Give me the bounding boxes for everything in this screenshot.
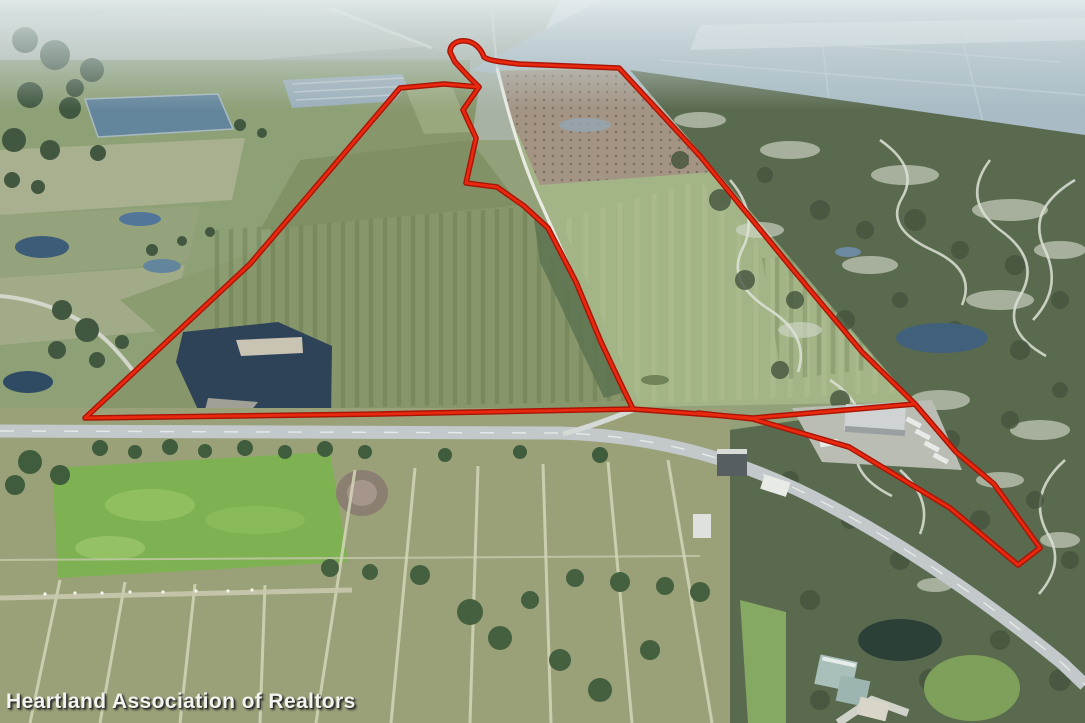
aerial-photo: Heartland Association of Realtors — [0, 0, 1085, 723]
watermark-text: Heartland Association of Realtors — [6, 690, 356, 714]
scrub-pond — [896, 323, 988, 353]
south-fields — [0, 408, 730, 723]
horizon-haze — [0, 0, 1085, 110]
aerial-photo-canvas — [0, 0, 1085, 723]
corner-pond — [858, 619, 942, 661]
clearing — [924, 655, 1020, 721]
parcel-pond — [176, 322, 332, 417]
shed — [693, 514, 711, 538]
